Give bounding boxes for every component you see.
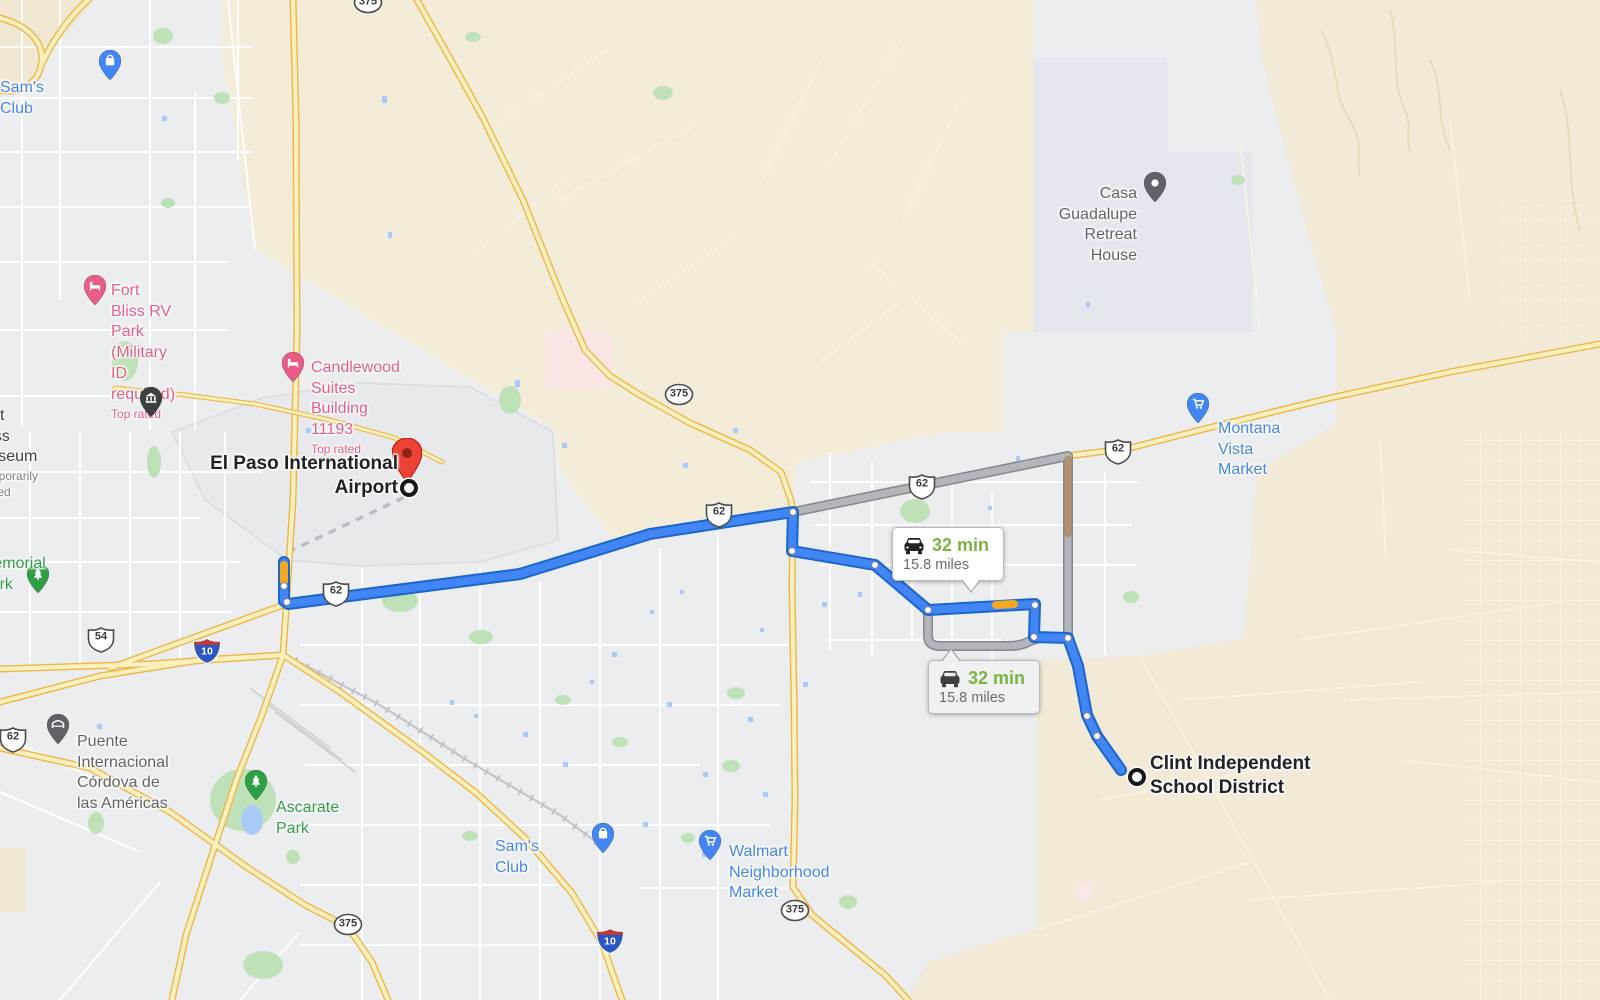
poi-name: Memorial Park xyxy=(0,555,46,593)
shield-number: 62 xyxy=(704,506,734,518)
route-distance: 15.8 miles xyxy=(939,690,1025,706)
poi-label: Puente Internacional Córdova de las Amér… xyxy=(77,711,169,836)
shield-number: 62 xyxy=(907,478,937,490)
origin-marker[interactable] xyxy=(400,479,418,497)
poi-label: Montana Vista Market xyxy=(1218,398,1280,502)
route-duration: 32 min xyxy=(932,535,989,556)
destination-marker[interactable] xyxy=(1128,768,1146,786)
poi-pin-icon[interactable] xyxy=(282,352,304,382)
route-shield: 375 xyxy=(333,912,363,939)
poi-pin-icon[interactable] xyxy=(245,770,267,800)
car-icon xyxy=(939,669,961,688)
poi-pin-icon[interactable] xyxy=(592,823,614,853)
route-info-primary[interactable]: 32 min 15.8 miles xyxy=(892,527,1004,581)
route-shield: 10 xyxy=(192,638,222,665)
poi-pin-icon[interactable] xyxy=(99,50,121,80)
poi-label: Casa Guadalupe Retreat House xyxy=(1059,163,1137,288)
poi-name: Fort Bliss Museum xyxy=(0,407,37,466)
poi-label: Sam's Club xyxy=(495,816,539,899)
poi-label: Memorial Park xyxy=(0,533,46,616)
route-info-alternate[interactable]: 32 min 15.8 miles xyxy=(928,660,1040,714)
poi-pin-icon[interactable] xyxy=(47,714,69,744)
poi-pin-icon[interactable] xyxy=(140,387,162,417)
poi-label: Walmart Neighborhood Market xyxy=(729,821,830,925)
poi-name: Fort Bliss RV Park (Military ID required… xyxy=(111,282,175,403)
poi-pin-icon[interactable] xyxy=(699,830,721,860)
shield-number: 10 xyxy=(595,936,625,948)
route-shield: 62 xyxy=(321,581,351,608)
route-distance: 15.8 miles xyxy=(903,557,989,573)
poi-pin-icon[interactable] xyxy=(1144,172,1166,202)
route-shield: 62 xyxy=(1103,439,1133,466)
poi-label: Fort Bliss Museum Temporarily closed xyxy=(0,385,38,521)
car-icon xyxy=(903,536,925,555)
shield-number: 10 xyxy=(192,646,222,658)
shield-number: 54 xyxy=(86,631,116,643)
route-shield: 375 xyxy=(664,382,694,409)
destination-label: Clint Independent School District xyxy=(1150,752,1310,800)
poi-name: Sam's Club xyxy=(0,79,44,117)
shield-number: 62 xyxy=(1103,443,1133,455)
route-shield: 62 xyxy=(0,727,28,754)
poi-name: Montana Vista Market xyxy=(1218,420,1280,479)
poi-subtext: Temporarily closed xyxy=(0,469,38,500)
route-shield: 54 xyxy=(86,627,116,654)
map-canvas[interactable]: 62 62 xyxy=(0,0,1600,1000)
poi-name: Sam's Club xyxy=(495,838,539,876)
shield-number: 375 xyxy=(353,0,383,8)
poi-label: Sam's Club xyxy=(0,57,44,140)
poi-name: Walmart Neighborhood Market xyxy=(729,843,830,902)
poi-name: Ascarate Park xyxy=(276,799,339,837)
poi-label: Ascarate Park xyxy=(276,777,339,860)
shield-number: 62 xyxy=(321,585,351,597)
route-duration: 32 min xyxy=(968,668,1025,689)
origin-label: El Paso International Airport xyxy=(210,452,398,500)
route-shield: 62 xyxy=(907,474,937,501)
route-shield: 375 xyxy=(353,0,383,17)
route-shield: 10 xyxy=(595,928,625,955)
route-shield: 62 xyxy=(704,502,734,529)
shield-number: 62 xyxy=(0,731,28,743)
poi-pin-icon[interactable] xyxy=(1187,393,1209,423)
poi-name: Puente Internacional Córdova de las Amér… xyxy=(77,733,169,812)
poi-pin-icon[interactable] xyxy=(84,275,106,305)
shield-number: 375 xyxy=(664,388,694,400)
poi-name: Casa Guadalupe Retreat House xyxy=(1059,185,1137,264)
poi-name: Candlewood Suites Building 11193 xyxy=(311,359,400,438)
shield-number: 375 xyxy=(333,918,363,930)
